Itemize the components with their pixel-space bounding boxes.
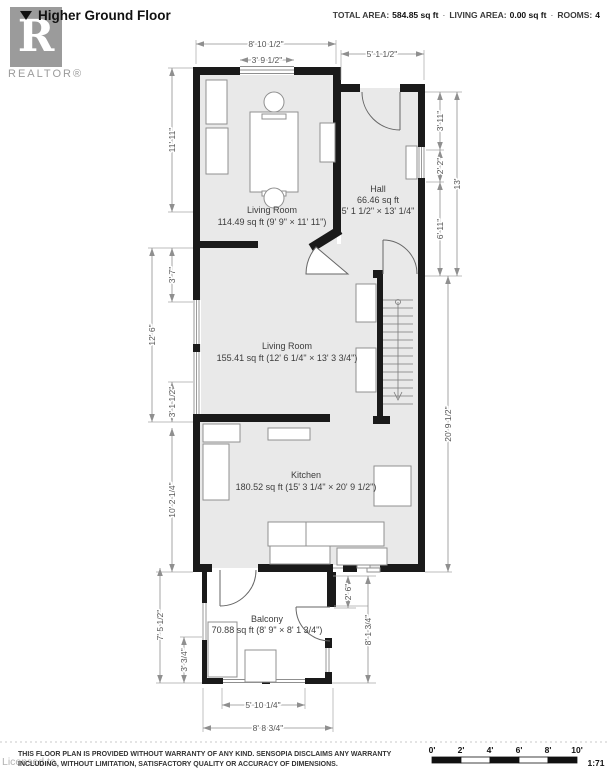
dimension-label: 11' 11" [167,128,177,153]
room-label-balcony: Balcony [251,614,284,624]
sliding-door-panel [367,568,380,572]
scale-tick-label: 8' [545,745,552,755]
wardrobe [206,128,228,174]
floor-plan-drawing: Living Room 114.49 sq ft (9' 9" × 11' 11… [0,0,608,768]
scale-bar: 0' 2' 4' 6' 8' 10' 1:71 [429,745,605,768]
disclaimer-line-1: THIS FLOOR PLAN IS PROVIDED WITHOUT WARR… [18,751,392,758]
scale-ratio: 1:71 [587,758,604,768]
area-stats: TOTAL AREA:584.85 sq ft·LIVING AREA:0.00… [333,10,600,20]
dimension-label: 13' [452,178,462,189]
room-label-hall: Hall [370,184,386,194]
kitchen-balcony-door [220,570,256,606]
wardrobe [206,80,227,124]
dimension-label: 3' 7" [167,267,177,283]
sofa [306,522,384,546]
page-title: Higher Ground Floor [38,8,171,23]
dimension-label: 7' 5 1/2" [155,610,165,641]
kitchen-counter [203,444,229,500]
sofa [337,548,387,565]
sofa [270,546,330,564]
dimension-label: 8' 1 3/4" [363,615,373,646]
dimension-label: 20' 9 1/2" [443,406,453,441]
dimension-label: 6' 11" [435,219,445,240]
scale-tick-label: 10' [571,745,582,755]
scale-tick-label: 4' [487,745,494,755]
rooms-label: ROOMS: [557,10,592,20]
balcony-table [245,650,276,682]
total-area-label: TOTAL AREA: [333,10,389,20]
dimension-label: 3' 11" [435,111,445,132]
balcony-side-door [296,607,330,641]
floor-title-row: Higher Ground Floor [20,8,171,23]
dimension-label: 12' 6" [147,324,157,345]
scale-tick-label: 6' [516,745,523,755]
room-area-kitchen: 180.52 sq ft (15' 3 1/4" × 20' 9 1/2") [236,482,377,492]
separator: · [550,10,553,20]
dining-table [250,112,298,192]
room-label-living-room-1: Living Room [247,205,297,215]
dimension-label: 2' 2" [435,158,445,174]
room-label-living-room-2: Living Room [262,341,312,351]
dropdown-triangle-icon[interactable] [20,11,32,20]
dimension-label: 8' 10 1/2" [248,39,283,49]
scale-tick-label: 2' [458,745,465,755]
disclaimer-line-2: INCLUDING, WITHOUT LIMITATION, SATISFACT… [18,761,338,768]
dimension-label: 5' 1 1/2" [367,49,398,59]
room-area-living-room-1: 114.49 sq ft (9' 9" × 11' 11") [218,217,327,227]
rooms-value: 4 [595,10,600,20]
kitchen-counter [203,424,240,442]
dimension-label: 3' 1 1/2" [167,387,177,418]
closet [356,348,376,392]
dimension-label: 8' 8 3/4" [253,723,284,733]
realtor-wordmark: REALTOR® [8,68,83,80]
room-dims-hall: 5' 1 1/2" × 13' 1/4" [342,206,415,216]
sofa [268,522,306,546]
room-label-kitchen: Kitchen [291,470,321,480]
dimension-label: 2' 6" [343,584,353,600]
separator: · [442,10,445,20]
footer: Licensed to THIS FLOOR PLAN IS PROVIDED … [0,742,608,768]
fridge [374,466,411,506]
dimension-label: 3' 9 1/2" [252,55,283,65]
closet [356,284,376,322]
living-area-value: 0.00 sq ft [510,10,547,20]
scale-tick-label: 0' [429,745,436,755]
dimension-label: 10' 2 1/4" [167,482,177,517]
dimension-label: 5' 10 1/4" [245,700,280,710]
dimension-label: 3' 3/4" [179,648,189,672]
cabinet [320,123,335,162]
total-area-value: 584.85 sq ft [392,10,438,20]
room-area-balcony: 70.88 sq ft (8' 9" × 8' 1 3/4") [212,625,323,635]
floor-plan-page: R REALTOR® Higher Ground Floor TOTAL ARE… [0,0,608,768]
room-area-living-room-2: 155.41 sq ft (12' 6 1/4" × 13' 3 3/4") [217,353,358,363]
room-area-hall: 66.46 sq ft [357,195,400,205]
chair [264,92,284,112]
chair-seat [262,114,286,119]
window-box [406,146,417,179]
living-area-label: LIVING AREA: [449,10,506,20]
kitchen-shelf [268,428,310,440]
